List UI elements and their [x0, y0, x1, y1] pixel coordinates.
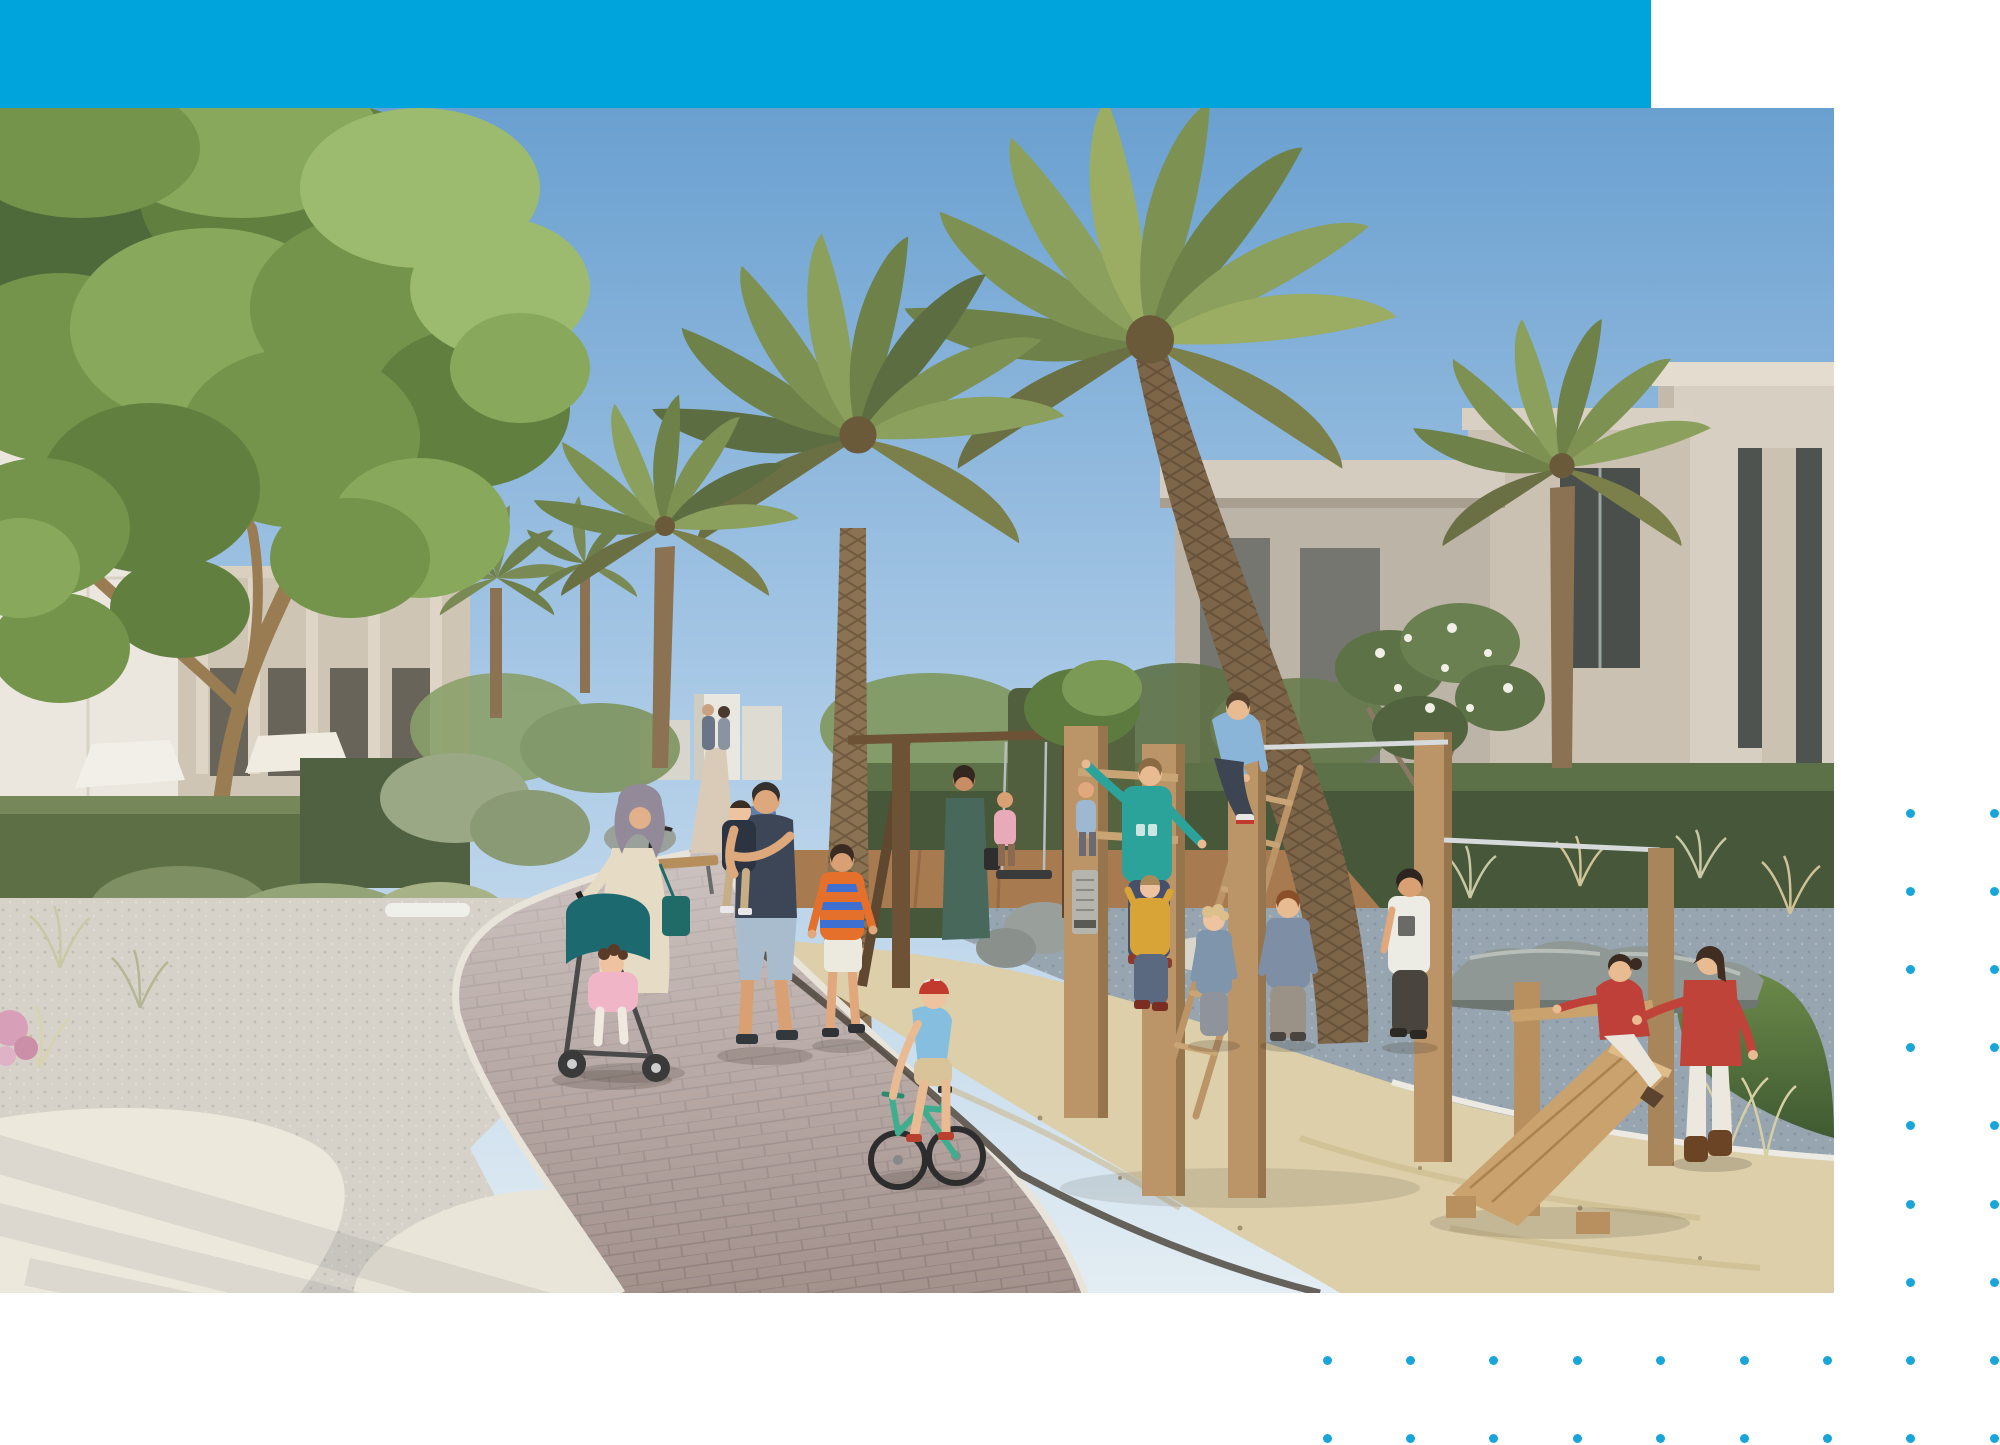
decor-dot — [1823, 1356, 1832, 1365]
decor-dot — [1906, 1356, 1915, 1365]
decor-dot — [1906, 1278, 1915, 1287]
decor-dot — [1740, 1356, 1749, 1365]
decor-dot — [1656, 1356, 1665, 1365]
decor-dot — [1573, 1434, 1582, 1443]
decor-dot — [1990, 1434, 1999, 1443]
decor-dot — [1323, 1434, 1332, 1443]
decor-dot — [1990, 1121, 1999, 1130]
decor-dot — [1573, 1356, 1582, 1365]
park-rendering-photo — [0, 108, 1834, 1293]
decor-dot — [1906, 809, 1915, 818]
decor-dot — [1823, 1434, 1832, 1443]
decor-dot — [1990, 1043, 1999, 1052]
decor-dot — [1990, 809, 1999, 818]
decor-dot — [1990, 887, 1999, 896]
decor-dot — [1906, 965, 1915, 974]
decor-dot — [1406, 1356, 1415, 1365]
decor-dot — [1489, 1356, 1498, 1365]
decor-dot — [1740, 1434, 1749, 1443]
decor-dot — [1906, 887, 1915, 896]
decor-dot — [1323, 1356, 1332, 1365]
decor-dot — [1990, 1356, 1999, 1365]
decor-dot — [1990, 1278, 1999, 1287]
decor-dot — [1990, 1200, 1999, 1209]
decor-dot — [1906, 1121, 1915, 1130]
decor-dot — [1906, 1434, 1915, 1443]
shade-canopy — [75, 740, 185, 788]
decor-dot — [1906, 1200, 1915, 1209]
decor-dot — [1489, 1434, 1498, 1443]
header-accent-bar — [0, 0, 1651, 108]
decor-dot — [1406, 1434, 1415, 1443]
decor-dot — [1906, 1043, 1915, 1052]
decor-dot — [1990, 965, 1999, 974]
decor-dot — [1656, 1434, 1665, 1443]
white-bench — [385, 903, 470, 917]
